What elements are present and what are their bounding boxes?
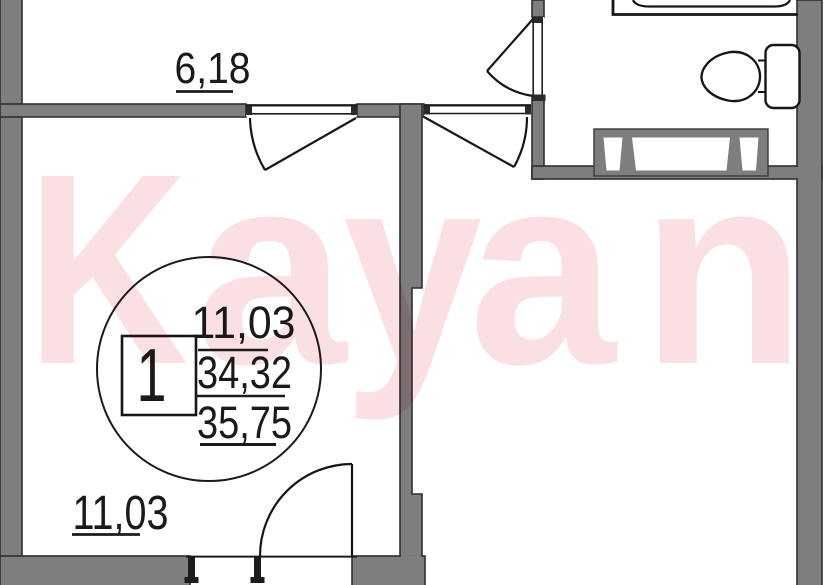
svg-text:a: a [469,116,617,421]
svg-text:K: K [27,117,188,421]
svg-text:11,03: 11,03 [73,487,169,540]
svg-text:y: y [343,117,484,422]
svg-text:a: a [195,117,348,421]
svg-text:6,18: 6,18 [175,44,251,93]
svg-text:n: n [641,118,805,422]
